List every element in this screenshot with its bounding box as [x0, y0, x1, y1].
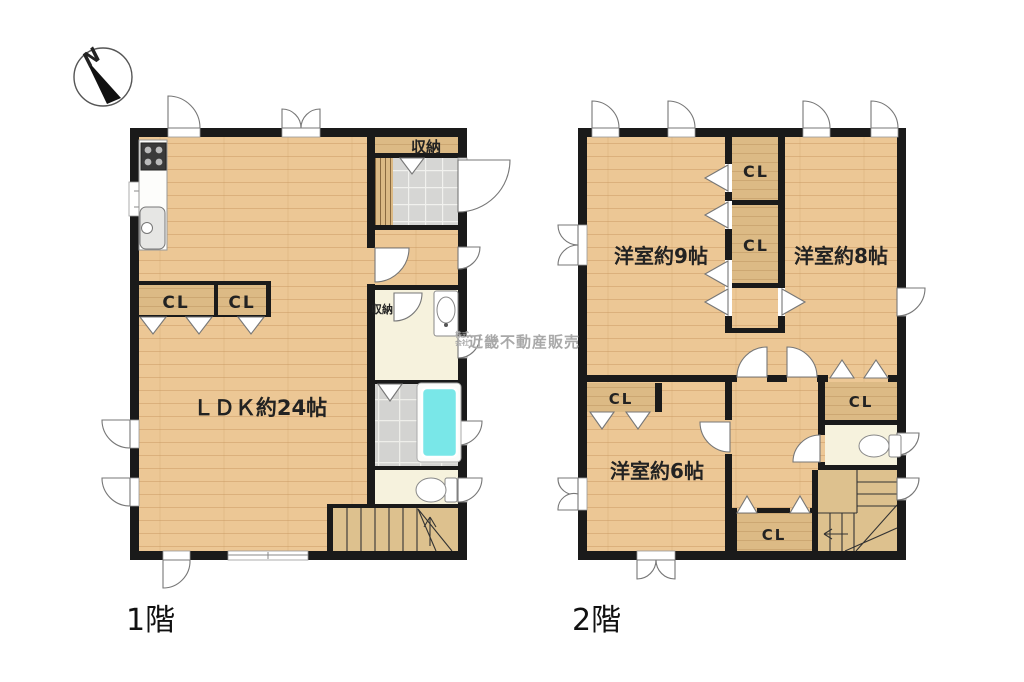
- floor2-room8-label: 洋室約8帖: [794, 244, 888, 268]
- floor1-right-window-swing1: [458, 247, 480, 269]
- floor1-name-label: 1階: [126, 603, 175, 638]
- kitchen-sink-icon: [140, 207, 165, 249]
- floor1-top-window-swing: [168, 96, 200, 128]
- floor2-right-window1: [897, 288, 925, 316]
- floor2-closet-bottom-label: CL: [762, 526, 787, 544]
- floor2-left-window1-bottom: [558, 245, 578, 265]
- floor2-name-label: 2階: [572, 603, 621, 638]
- floor1-ldk-label: ＬＤＫ約24帖: [193, 396, 327, 420]
- floor2-plan: 洋室約9帖 洋室約8帖 洋室約6帖 CL CL CL CL CL: [558, 101, 925, 579]
- floorplan-image: N: [0, 0, 1024, 682]
- floor1-storage-wash-label: 収納: [371, 302, 393, 316]
- floor1-bottom-door-swing: [163, 560, 190, 588]
- floorplan-svg: N: [0, 0, 1024, 682]
- stove-icon: [141, 143, 166, 170]
- compass-north-label: N: [77, 42, 105, 71]
- floor2-left-window2-bottom: [558, 493, 578, 510]
- floor1-top-double-window-right: [301, 109, 320, 128]
- floor2-top-window3: [803, 101, 830, 128]
- floor2-bottom-window-left: [637, 560, 656, 579]
- floor1-left-window-swing1: [102, 420, 130, 448]
- floor2-closet-room6-label: CL: [609, 390, 634, 408]
- floor2-left-window1-top: [558, 225, 578, 245]
- floor2-right-window3: [897, 478, 919, 500]
- watermark-company: 近畿不動産販売: [468, 333, 580, 351]
- floor1-top-double-window-left: [282, 109, 301, 128]
- floor1-left-window-swing2: [102, 478, 130, 506]
- floor2-closet-b-label: CL: [743, 236, 769, 255]
- floor1-storage-top-label: 収納: [411, 138, 441, 156]
- floor1-toilet-door-swing: [458, 478, 482, 502]
- floor2-closet-right-label: CL: [849, 393, 874, 411]
- floor2-top-window1: [592, 101, 619, 128]
- watermark-prefix-line2: 会社: [455, 338, 469, 347]
- floor1-closet2-label: CL: [228, 293, 255, 313]
- floor2-bottom-window-right: [656, 560, 675, 579]
- bathtub-icon: [417, 383, 461, 462]
- floor1-entry-step: [375, 158, 393, 225]
- floor2-top-window4: [871, 101, 898, 128]
- toilet-floor2-icon: [859, 435, 901, 457]
- watermark: 株式 会社 近畿不動産販売: [455, 330, 580, 351]
- floor1-entry-tile: [393, 158, 458, 225]
- floor2-room6-label: 洋室約6帖: [610, 459, 704, 483]
- compass: N: [74, 42, 132, 106]
- floor1-bathroom-window-swing: [458, 421, 482, 445]
- floor2-top-window2: [668, 101, 695, 128]
- floor1-closet1-label: CL: [162, 293, 189, 313]
- floor1-plan: ＬＤＫ約24帖 CL CL 収納 収納: [102, 96, 510, 588]
- floor1-entry-door-swing: [458, 160, 510, 212]
- watermark-prefix-line1: 株式: [455, 330, 469, 339]
- toilet-floor1-icon: [416, 478, 457, 502]
- washbasin-icon: [434, 291, 458, 336]
- floor2-left-window2-top: [558, 478, 578, 495]
- floor2-room9-label: 洋室約9帖: [614, 244, 708, 268]
- floor2-closet-a-label: CL: [743, 162, 769, 181]
- floor1-stairs-floor: [333, 508, 458, 551]
